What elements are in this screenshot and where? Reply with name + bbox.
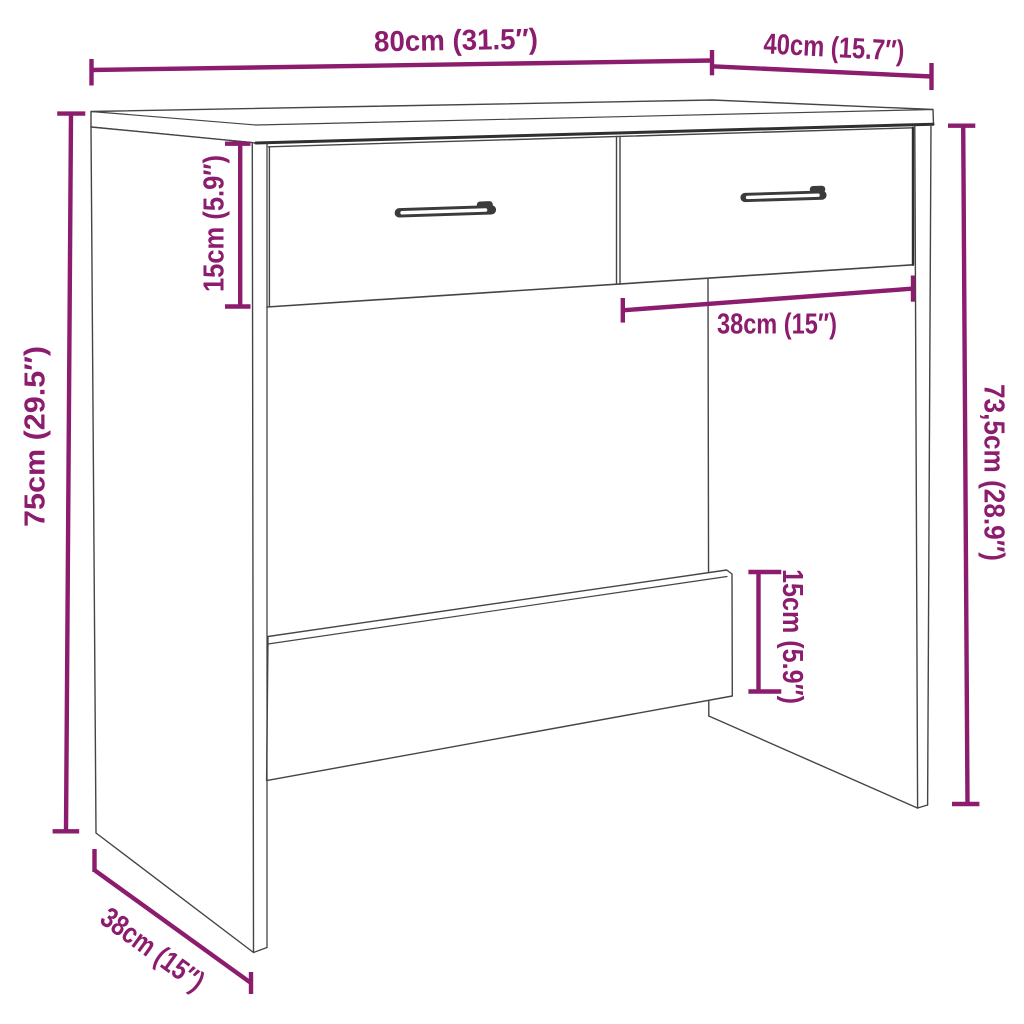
svg-text:80cm (31.5″): 80cm (31.5″): [374, 24, 539, 59]
svg-text:15cm (5.9″): 15cm (5.9″): [198, 155, 230, 292]
svg-text:15cm (5.9″): 15cm (5.9″): [776, 569, 808, 704]
svg-text:38cm (15″): 38cm (15″): [717, 308, 837, 340]
svg-text:73,5cm (28.9″): 73,5cm (28.9″): [978, 384, 1010, 561]
svg-text:75cm (29.5″): 75cm (29.5″): [20, 346, 52, 527]
